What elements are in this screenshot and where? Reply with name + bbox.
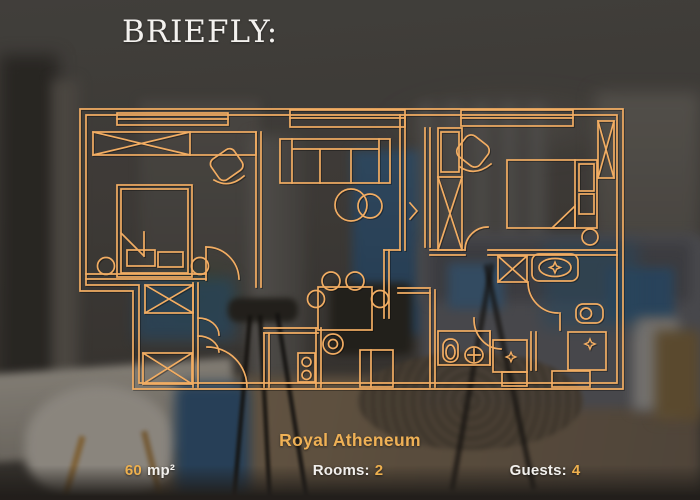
floor-plan: [0, 0, 700, 500]
dining-table: [308, 272, 389, 330]
kitchen: [207, 328, 393, 387]
floor-plan-lines: [80, 109, 623, 389]
hallway: [143, 283, 219, 387]
bathroom-vanity: [438, 331, 490, 365]
bathroom-toilet: [576, 304, 603, 323]
bathroom-shower-tray: [493, 332, 536, 386]
bedroom2-cabinet: [598, 121, 614, 178]
area-unit: mp²: [147, 462, 175, 479]
living-sofa: [280, 139, 390, 183]
stat-guests: Guests:4: [445, 462, 645, 479]
bedroom1-bed: [117, 185, 192, 277]
bedroom1-desk-chair: [208, 146, 245, 183]
brand-logo: BRIEFLY:: [122, 14, 278, 50]
stat-rooms: Rooms:2: [248, 462, 448, 479]
area-value: 60: [125, 462, 142, 479]
bathroom-washer: [498, 256, 527, 282]
listing-card: BRIEFLY: Royal Atheneum 60mp² Rooms:2 Gu…: [0, 0, 700, 500]
corridor-walls: [384, 115, 435, 387]
windows: [117, 110, 573, 127]
guests-value: 4: [572, 462, 581, 479]
rooms-value: 2: [375, 462, 384, 479]
guests-label: Guests:: [510, 462, 567, 479]
bathroom-sink: [532, 254, 578, 281]
bedroom2-stool: [582, 229, 598, 245]
living-side-tables: [335, 189, 382, 221]
stat-area: 60mp²: [50, 462, 250, 479]
bathroom-shower: [552, 332, 606, 387]
listing-name: Royal Atheneum: [0, 430, 700, 451]
bedroom2-bed: [507, 160, 597, 228]
bathroom-doors: [474, 282, 560, 349]
bedroom1-wardrobe: [93, 132, 256, 155]
rooms-label: Rooms:: [313, 462, 370, 479]
